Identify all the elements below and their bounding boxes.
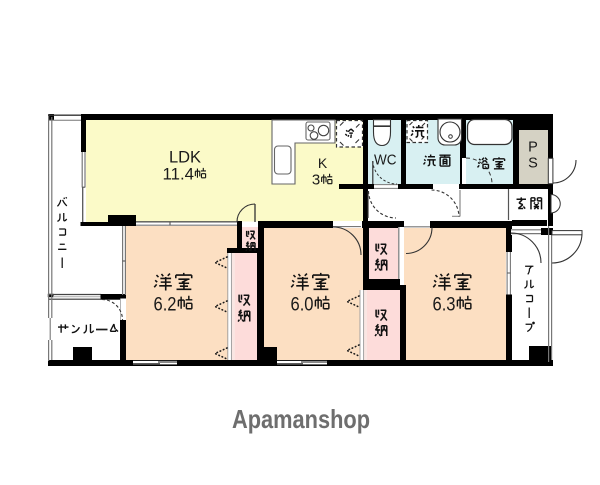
svg-text:Apamanshop: Apamanshop <box>232 404 370 434</box>
svg-text:6.2: 6.2 <box>154 295 177 316</box>
svg-text:WC: WC <box>374 152 397 169</box>
svg-text:LDK: LDK <box>169 149 201 167</box>
svg-text:K: K <box>318 155 328 171</box>
svg-text:6.0: 6.0 <box>291 295 314 316</box>
svg-text:S: S <box>528 156 538 172</box>
svg-text:P: P <box>528 140 538 156</box>
svg-text:3: 3 <box>312 172 320 189</box>
svg-text:6.3: 6.3 <box>433 295 456 316</box>
svg-text:11.4: 11.4 <box>163 166 195 184</box>
